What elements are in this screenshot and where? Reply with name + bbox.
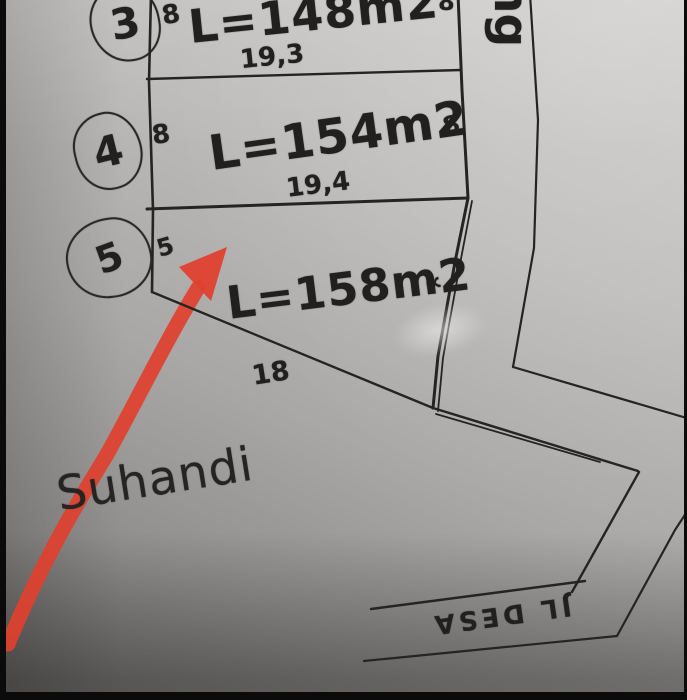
plot4-left-dimension: 8 [150, 121, 172, 149]
road-corner-drop-line [572, 472, 639, 592]
vertical-street-name-fragment: ng [487, 0, 534, 47]
road-bend-inner-double-line [436, 414, 600, 462]
bottom-road-bottom-edge [364, 636, 617, 661]
plot4-width-dimension: 19,4 [285, 168, 352, 202]
photo-border-left [0, 0, 6, 700]
road-bend-inner-line [433, 408, 638, 471]
plot4-number: 4 [88, 124, 128, 179]
land-parcel-sketch-photo: 3 8 L=148m2 19,3 8 4 8 L=154m2 19,4 8 5 … [0, 0, 687, 700]
plot5-bottom-dimension: 18 [250, 357, 291, 390]
plot3-width-dimension: 19,3 [239, 41, 306, 74]
vertical-road-outer-edge [513, 0, 538, 367]
plot3-right-dimension: 8 [438, 0, 455, 14]
plot3-bottom-line [147, 70, 461, 79]
plot3-number: 3 [106, 0, 143, 50]
bottom-road-outer-corner [617, 504, 687, 636]
plot5-number: 5 [89, 233, 129, 283]
road-bend-outer-edge [513, 367, 687, 419]
photo-border-bottom [0, 692, 687, 700]
